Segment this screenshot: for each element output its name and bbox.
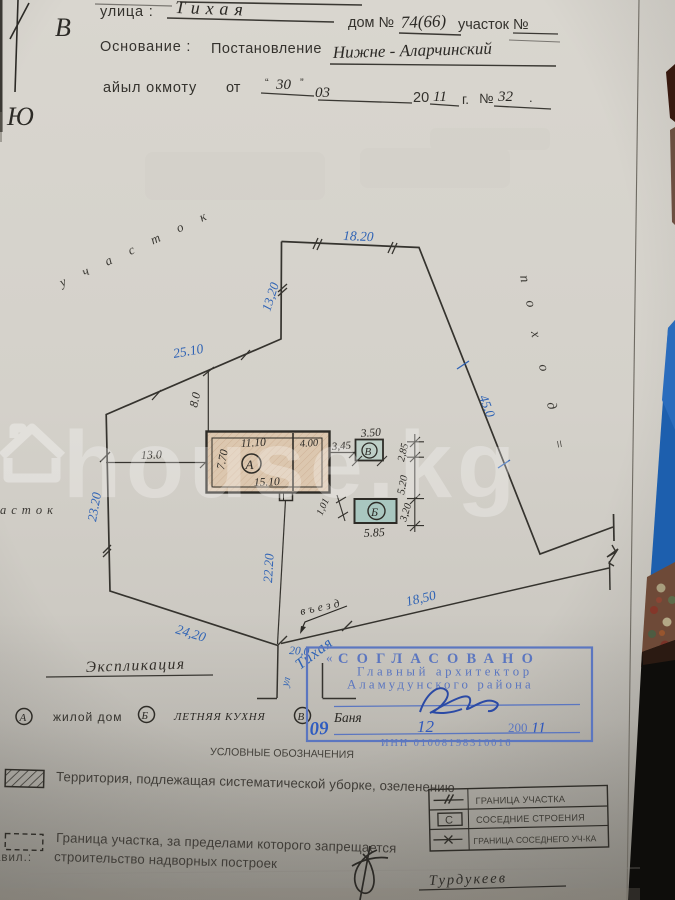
svg-text:участок №: участок №	[458, 17, 529, 33]
svg-text:Экспликация: Экспликация	[86, 656, 186, 676]
svg-text:асток: асток	[0, 503, 58, 517]
svg-text:32: 32	[497, 89, 514, 105]
svg-text:дом №: дом №	[348, 15, 394, 31]
svg-text:айыл окмоту: айыл окмоту	[103, 80, 197, 96]
svg-text:74(66): 74(66)	[400, 11, 446, 32]
svg-text:Постановление: Постановление	[211, 41, 322, 57]
svg-text:ЛЕТНЯЯ КУХНЯ: ЛЕТНЯЯ КУХНЯ	[173, 711, 266, 723]
svg-text:С: С	[445, 814, 453, 826]
svg-text:В: В	[55, 13, 71, 42]
svg-text:“: “	[265, 77, 269, 89]
svg-text:20: 20	[413, 90, 429, 106]
svg-text:Основание :: Основание :	[100, 39, 191, 55]
svg-text:03: 03	[315, 85, 330, 101]
svg-text:11: 11	[531, 720, 546, 737]
svg-text:г.: г.	[462, 92, 469, 107]
svg-text:от: от	[226, 80, 241, 96]
svg-text:09: 09	[309, 718, 330, 740]
svg-text:.: .	[529, 90, 533, 105]
svg-text:Ю: Ю	[6, 102, 34, 131]
svg-text:жилой дом: жилой дом	[53, 710, 123, 724]
svg-text:22.20: 22.20	[260, 553, 277, 583]
svg-text:Баня: Баня	[333, 710, 362, 725]
svg-text:Тихая: Тихая	[175, 0, 249, 20]
svg-text:авил.:: авил.:	[0, 852, 32, 864]
svg-text:Аламудунского района: Аламудунского района	[347, 678, 534, 692]
svg-text:30: 30	[275, 77, 292, 93]
svg-text:18.20: 18.20	[343, 228, 374, 244]
svg-text:№: №	[479, 91, 493, 106]
svg-text:ИНН 01008198310016: ИНН 01008198310016	[381, 738, 512, 749]
svg-text:Главный архитектор: Главный архитектор	[357, 665, 533, 679]
svg-text:улица :: улица :	[100, 4, 154, 20]
svg-text:5.85: 5.85	[363, 525, 385, 540]
svg-text:Турдукеев: Турдукеев	[429, 870, 508, 889]
svg-text:ГРАНИЦА УЧАСТКА: ГРАНИЦА УЧАСТКА	[475, 794, 566, 806]
svg-text:”: ”	[300, 77, 304, 89]
svg-text:Б: Б	[141, 710, 149, 722]
svg-text:А: А	[19, 712, 27, 724]
svg-text:11: 11	[433, 89, 447, 105]
svg-text:«: «	[326, 650, 333, 665]
svg-text:house.kg: house.kg	[63, 412, 520, 518]
svg-text:В: В	[298, 711, 305, 723]
